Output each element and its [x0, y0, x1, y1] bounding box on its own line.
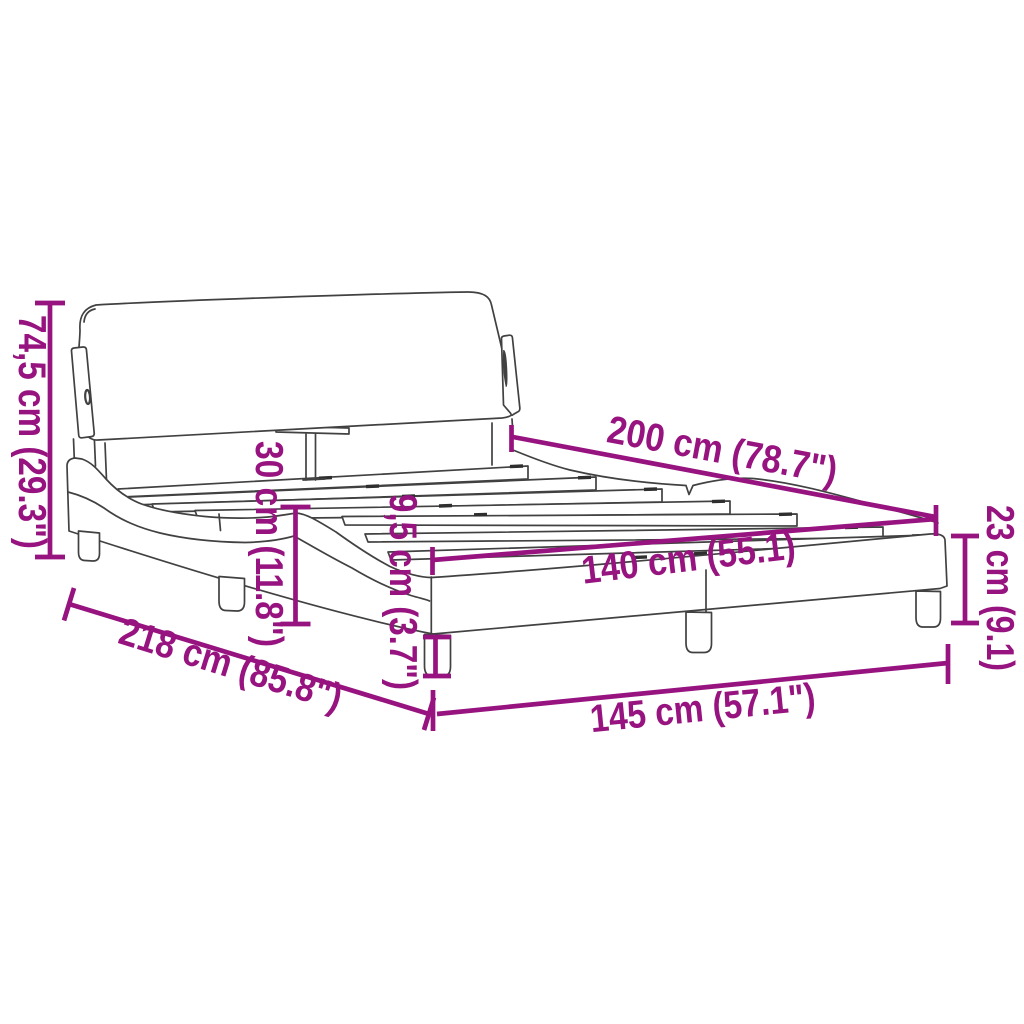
svg-text:74,5 cm (29.3"): 74,5 cm (29.3"): [10, 315, 53, 549]
svg-text:23 cm (9.1): 23 cm (9.1): [978, 505, 1021, 671]
svg-text:9,5 cm (3.7"): 9,5 cm (3.7"): [381, 494, 424, 690]
svg-text:30 cm (11.8"): 30 cm (11.8"): [247, 441, 290, 647]
